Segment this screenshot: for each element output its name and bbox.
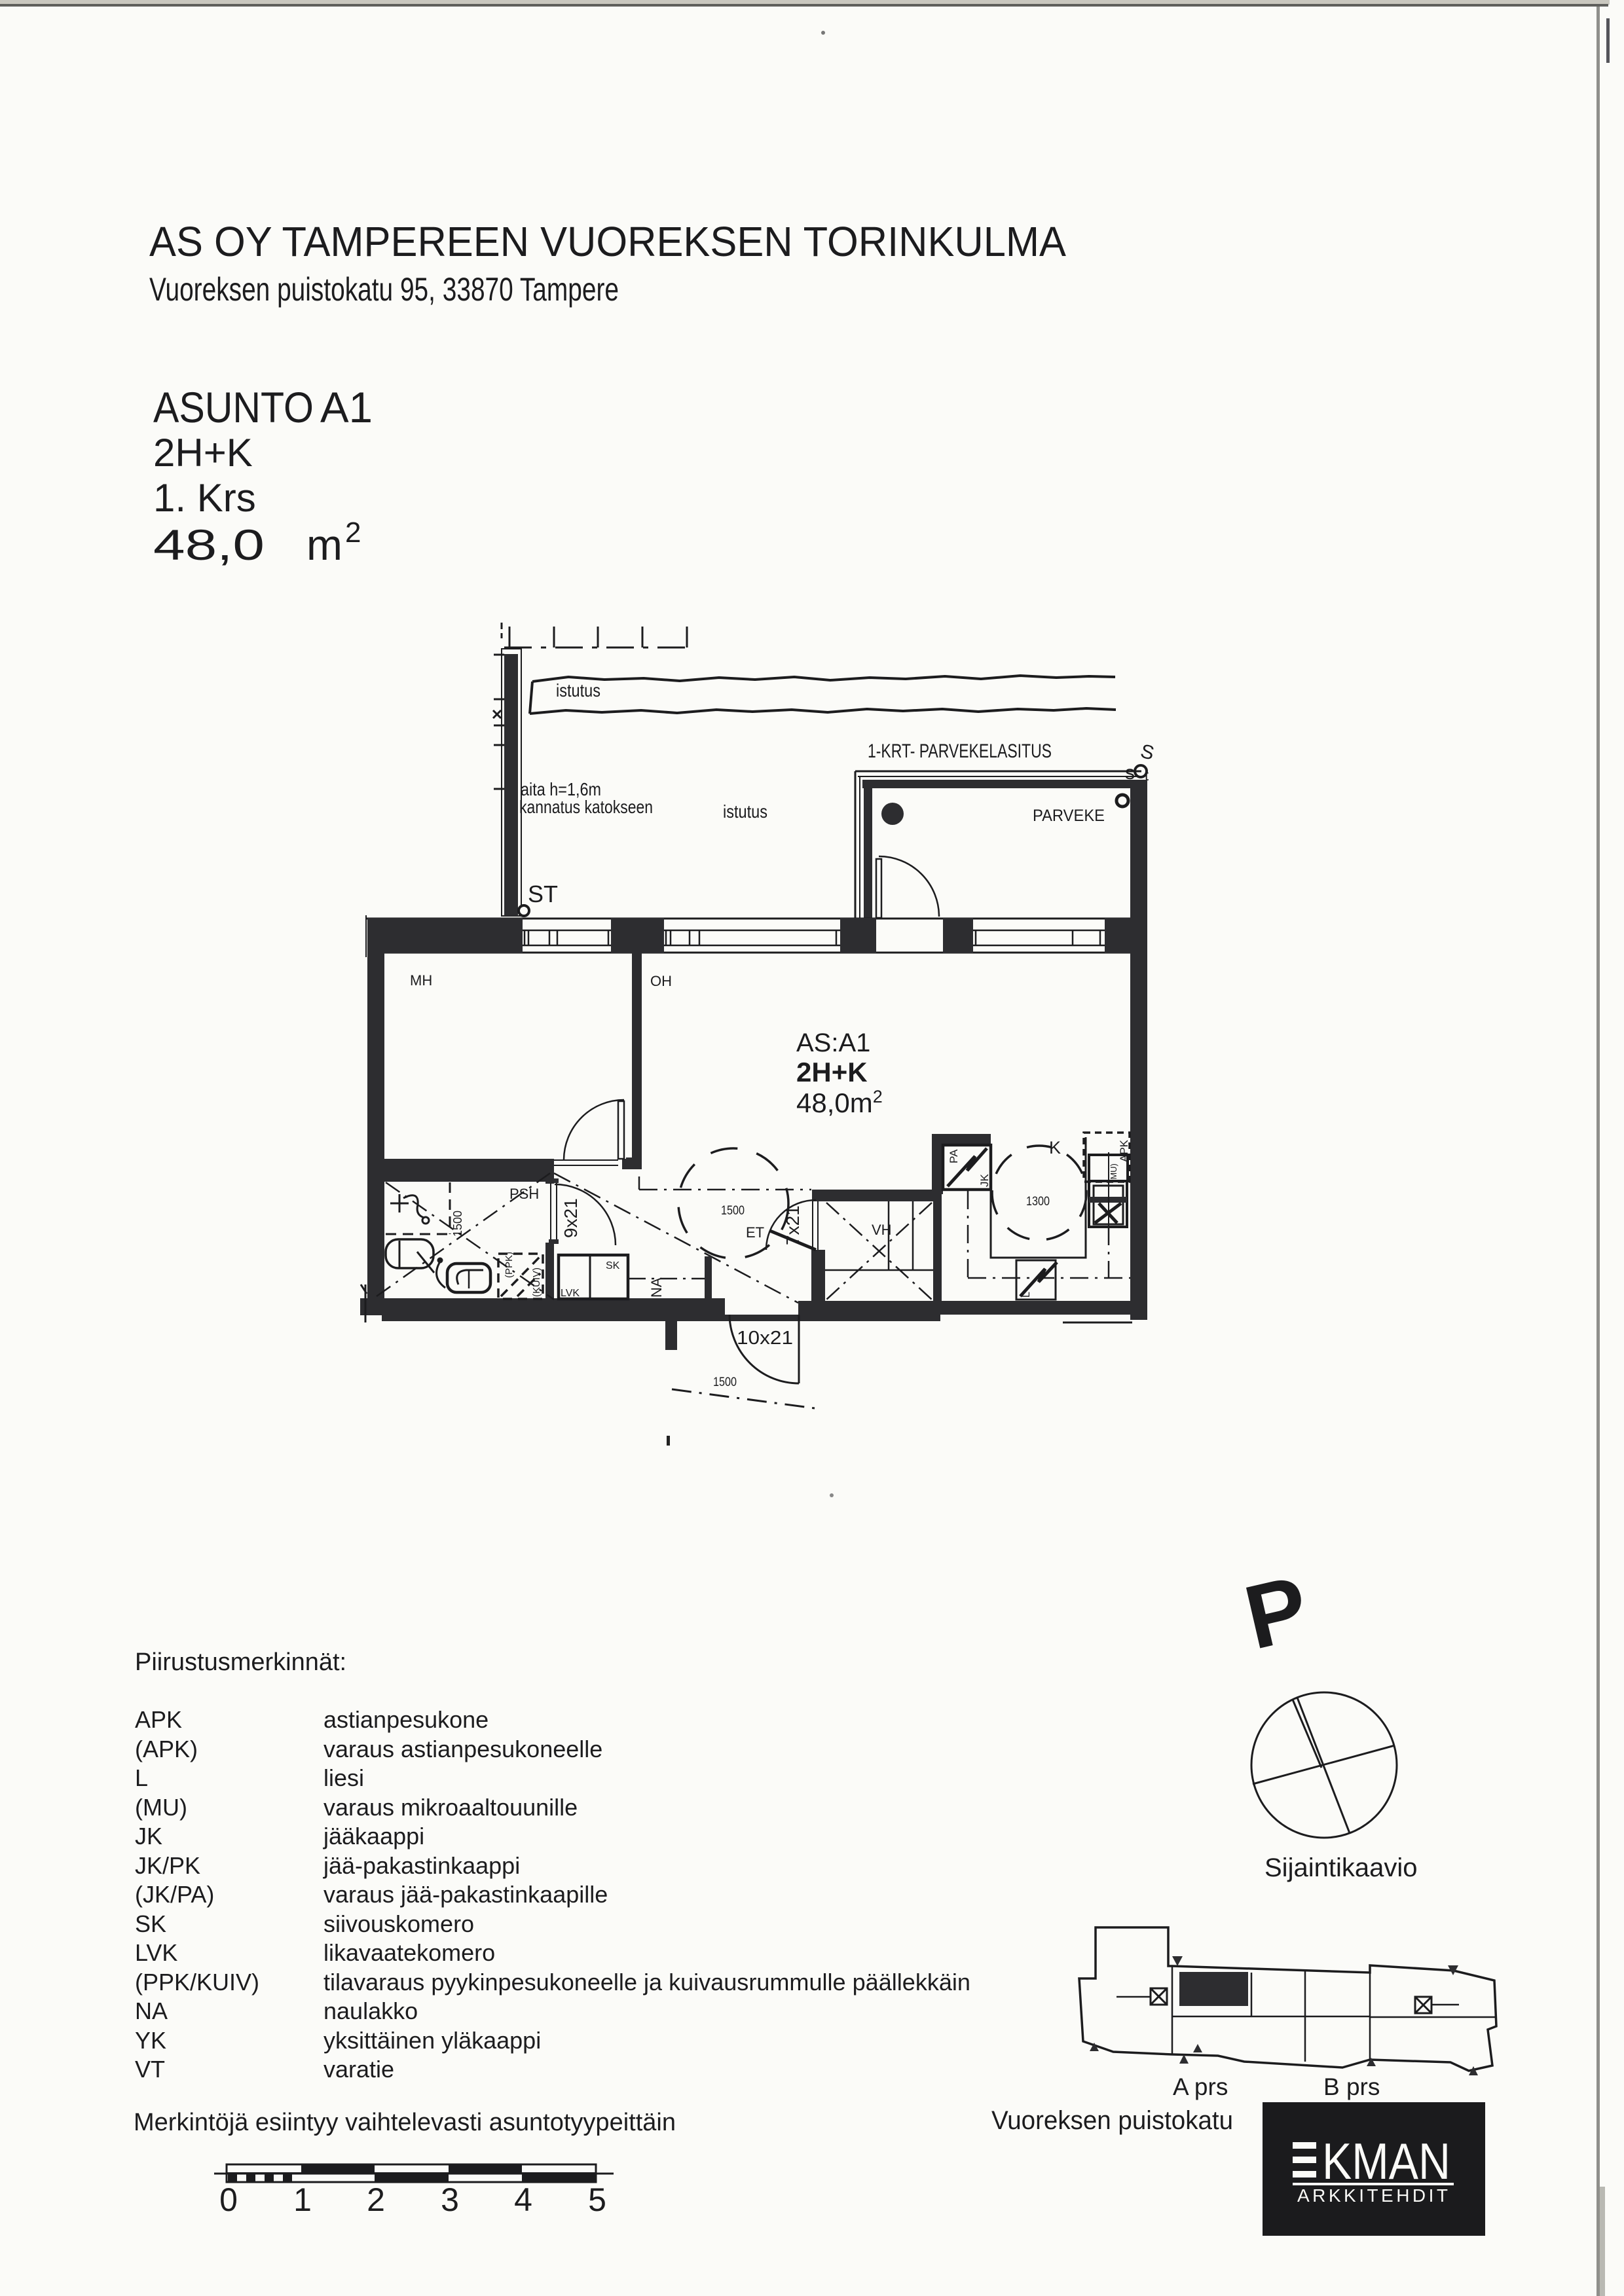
svg-text:istutus: istutus bbox=[556, 680, 600, 701]
svg-text:L: L bbox=[135, 1764, 148, 1791]
svg-text:tilavaraus pyykinpesukoneelle: tilavaraus pyykinpesukoneelle ja kuivaus… bbox=[323, 1969, 970, 1995]
svg-text:A prs: A prs bbox=[1173, 2073, 1228, 2100]
svg-text:LVK: LVK bbox=[135, 1939, 177, 1966]
svg-text:1300: 1300 bbox=[1026, 1195, 1050, 1209]
svg-text:1500: 1500 bbox=[713, 1376, 737, 1389]
svg-text:OH: OH bbox=[650, 973, 672, 989]
svg-text:Merkintöjä esiintyy vaihteleva: Merkintöjä esiintyy vaihtelevasti asunto… bbox=[134, 2109, 676, 2136]
svg-text:Piirustusmerkinnät:: Piirustusmerkinnät: bbox=[135, 1649, 346, 1676]
svg-text:48,0m2: 48,0m2 bbox=[796, 1087, 883, 1118]
svg-text:(JK/PA): (JK/PA) bbox=[135, 1881, 214, 1908]
svg-text:(MU): (MU) bbox=[1109, 1163, 1118, 1182]
svg-text:7x21: 7x21 bbox=[783, 1205, 803, 1245]
svg-text:48,0: 48,0 bbox=[153, 520, 265, 569]
svg-text:1500: 1500 bbox=[721, 1204, 745, 1218]
svg-text:ST: ST bbox=[528, 881, 558, 907]
svg-text:kannatus katokseen: kannatus katokseen bbox=[519, 797, 653, 817]
svg-text:SK: SK bbox=[135, 1910, 166, 1937]
svg-text:A1: A1 bbox=[320, 383, 373, 431]
svg-text:(KUIV): (KUIV) bbox=[531, 1267, 542, 1297]
svg-text:1. Krs: 1. Krs bbox=[153, 476, 256, 520]
svg-text:jää-pakastinkaappi: jää-pakastinkaappi bbox=[323, 1852, 520, 1879]
svg-text:KMAN: KMAN bbox=[1322, 2132, 1450, 2190]
svg-text:4: 4 bbox=[514, 2181, 532, 2218]
svg-text:PARVEKE: PARVEKE bbox=[1033, 807, 1105, 825]
svg-text:ARKKITEHDIT: ARKKITEHDIT bbox=[1297, 2185, 1448, 2206]
svg-text:2H+K: 2H+K bbox=[153, 431, 253, 475]
svg-text:liesi: liesi bbox=[323, 1764, 364, 1791]
svg-text:K: K bbox=[1049, 1138, 1061, 1157]
svg-text:YK: YK bbox=[135, 2027, 166, 2054]
svg-text:(APK): (APK) bbox=[135, 1736, 198, 1762]
svg-text:B prs: B prs bbox=[1323, 2073, 1380, 2100]
svg-text:istutus: istutus bbox=[723, 801, 767, 822]
svg-text:5: 5 bbox=[588, 2181, 606, 2218]
svg-text:AS OY TAMPEREEN VUOREKSEN TORI: AS OY TAMPEREEN VUOREKSEN TORINKULMA bbox=[149, 218, 1066, 265]
svg-text:JK: JK bbox=[978, 1174, 991, 1188]
svg-text:likavaatekomero: likavaatekomero bbox=[323, 1939, 495, 1966]
svg-text:varaus mikroaaltouunille: varaus mikroaaltouunille bbox=[323, 1794, 578, 1821]
svg-text:LVK: LVK bbox=[561, 1288, 580, 1299]
svg-text:SK: SK bbox=[606, 1260, 620, 1271]
svg-text:3: 3 bbox=[441, 2181, 459, 2218]
svg-text:VT: VT bbox=[135, 2056, 165, 2083]
svg-text:2: 2 bbox=[345, 517, 361, 549]
svg-text:JK/PK: JK/PK bbox=[135, 1852, 200, 1879]
svg-text:ET: ET bbox=[746, 1224, 764, 1241]
svg-text:APK: APK bbox=[135, 1706, 182, 1733]
svg-text:Vuoreksen puistokatu: Vuoreksen puistokatu bbox=[991, 2106, 1233, 2135]
svg-text:L: L bbox=[1021, 1292, 1032, 1298]
svg-text:9x21: 9x21 bbox=[561, 1198, 581, 1238]
svg-text:S: S bbox=[1138, 740, 1156, 765]
svg-text:varaus jää-pakastinkaapille: varaus jää-pakastinkaapille bbox=[323, 1881, 608, 1908]
svg-text:NA: NA bbox=[648, 1277, 665, 1298]
svg-text:PA: PA bbox=[948, 1149, 960, 1163]
svg-text:astianpesukone: astianpesukone bbox=[323, 1706, 489, 1733]
svg-text:m: m bbox=[306, 520, 342, 569]
svg-text:MH: MH bbox=[410, 972, 432, 989]
svg-text:2H+K: 2H+K bbox=[796, 1057, 868, 1087]
svg-text:ASUNTO: ASUNTO bbox=[153, 383, 314, 431]
svg-text:jääkaappi: jääkaappi bbox=[323, 1823, 424, 1850]
svg-text:naulakko: naulakko bbox=[323, 1997, 418, 2024]
svg-text:Vuoreksen puistokatu 95, 33870: Vuoreksen puistokatu 95, 33870 Tampere bbox=[149, 271, 619, 308]
svg-text:P: P bbox=[1236, 1557, 1317, 1669]
svg-text:1-KRT- PARVEKELASITUS: 1-KRT- PARVEKELASITUS bbox=[868, 740, 1052, 762]
svg-text:varatie: varatie bbox=[323, 2056, 394, 2083]
svg-text:2: 2 bbox=[367, 2181, 385, 2218]
svg-text:10x21: 10x21 bbox=[737, 1328, 793, 1349]
svg-text:Sijaintikaavio: Sijaintikaavio bbox=[1264, 1853, 1417, 1882]
svg-text:varaus astianpesukoneelle: varaus astianpesukoneelle bbox=[323, 1736, 602, 1762]
svg-text:(PPK): (PPK) bbox=[504, 1252, 515, 1278]
svg-text:AS:A1: AS:A1 bbox=[796, 1029, 870, 1057]
svg-text:yksittäinen yläkaappi: yksittäinen yläkaappi bbox=[323, 2027, 541, 2054]
svg-text:1500: 1500 bbox=[451, 1211, 464, 1237]
svg-text:JK: JK bbox=[135, 1823, 162, 1850]
svg-text:siivouskomero: siivouskomero bbox=[323, 1910, 474, 1937]
svg-text:NA: NA bbox=[135, 1997, 168, 2024]
svg-text:1: 1 bbox=[293, 2181, 312, 2218]
svg-text:0: 0 bbox=[219, 2181, 238, 2218]
svg-text:(PPK/KUIV): (PPK/KUIV) bbox=[135, 1969, 259, 1995]
svg-text:(MU): (MU) bbox=[135, 1794, 187, 1821]
